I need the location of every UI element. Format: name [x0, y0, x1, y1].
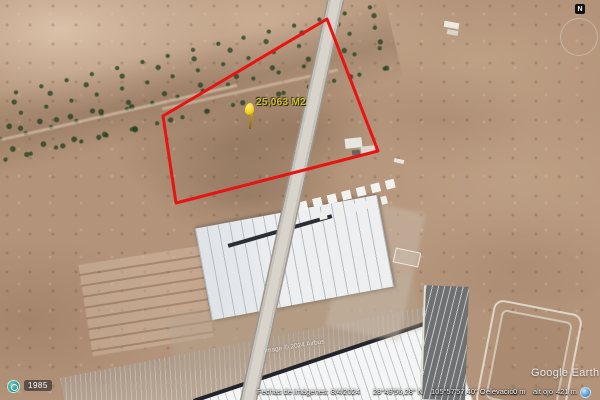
status-eye-altitude-value: 421 m: [556, 387, 577, 396]
status-elevation-value: 0 m: [513, 387, 526, 396]
status-latitude: 28°49'56,28" N: [373, 387, 423, 396]
history-clock-icon[interactable]: [7, 380, 20, 393]
parcel-area-label: 25,063 M2: [256, 97, 306, 108]
container-structure: [352, 150, 360, 156]
status-longitude: 105°57'57,40" O: [431, 387, 486, 396]
small-building: [361, 145, 376, 154]
status-eye-altitude-label: alt ojo: [533, 387, 553, 396]
compass-ring: [560, 18, 598, 56]
imagery-year-badge[interactable]: 1985: [24, 380, 52, 391]
globe-streaming-icon: [580, 387, 591, 398]
satellite-view[interactable]: 25,063 M2 N 1985 Google Earth Image © 20…: [0, 0, 600, 400]
north-indicator[interactable]: N: [575, 4, 585, 14]
google-earth-watermark: Google Earth: [531, 367, 599, 379]
north-label: N: [577, 6, 582, 13]
striped-parking-lot: [420, 285, 469, 400]
clock-face: [11, 384, 18, 391]
status-imagery-date: Fechas de imágenes: 8/4/2024: [257, 387, 360, 396]
